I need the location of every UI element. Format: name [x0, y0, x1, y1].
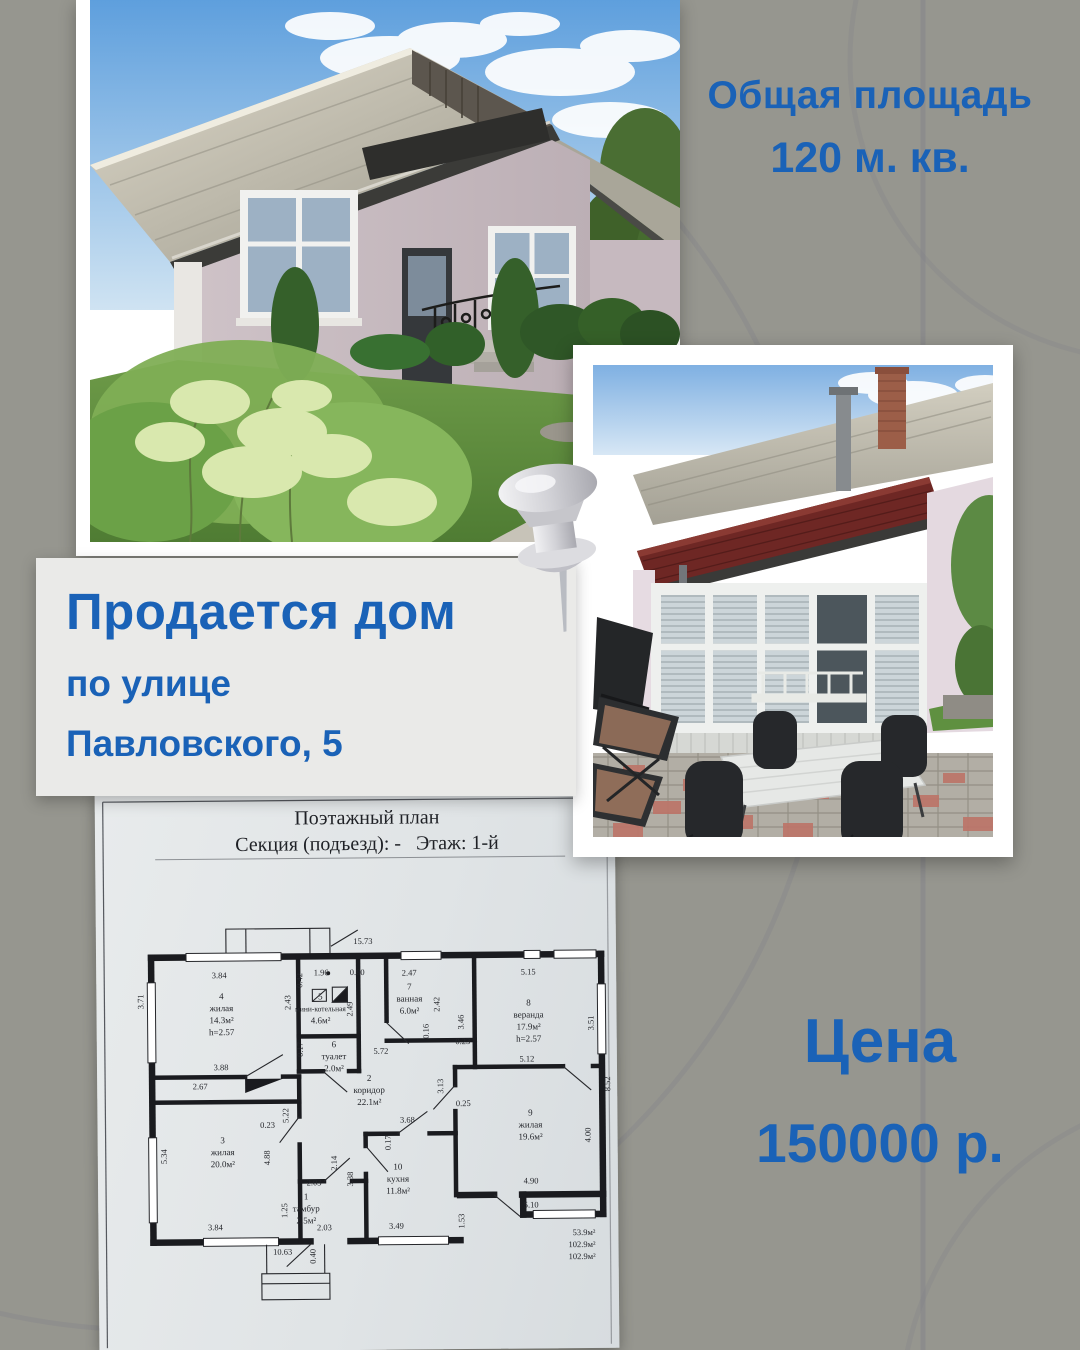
plan-room-label: 20.0м² — [211, 1159, 236, 1169]
plan-dim-label: 3.51 — [586, 1015, 596, 1030]
total-area-value: 120 м. кв. — [660, 134, 1080, 183]
pushpin-icon — [477, 448, 632, 638]
plan-dim-label: 3.84 — [208, 1222, 224, 1232]
plan-dim-label: 2.42 — [431, 997, 441, 1012]
plan-room-label: ванная — [396, 993, 422, 1003]
plan-dim-label: 5.12 — [519, 1053, 534, 1063]
plan-dim-label: 2.49 — [344, 1002, 354, 1017]
plan-room-label: 8 — [526, 997, 531, 1007]
plan-dim-label: 4.00 — [583, 1128, 593, 1143]
veranda-glazing — [651, 583, 927, 733]
plan-room-label: 14.3м² — [209, 1015, 234, 1025]
plan-room-label: 2.0м² — [324, 1063, 344, 1073]
plan-dim-label: 8.52 — [602, 1076, 612, 1091]
plan-dim-label: 3.84 — [212, 970, 228, 980]
plan-dim-label: 3.46 — [456, 1015, 466, 1030]
plan-dim-label: 0.25 — [456, 1098, 471, 1108]
plan-dim-label: 0.23 — [260, 1120, 275, 1130]
plan-room-label: 11.8м² — [386, 1186, 410, 1196]
plan-room-label: жилая — [210, 1147, 235, 1157]
patio-photo-frame — [573, 345, 1013, 857]
plan-room-label: 17.9м² — [517, 1021, 542, 1031]
patio-photo — [593, 365, 993, 837]
listing-street-line: по улице — [66, 663, 566, 705]
door-hatch — [245, 1079, 283, 1093]
plan-dim-label: 2.43 — [282, 995, 292, 1010]
plan-room-label: 5 — [318, 991, 323, 1001]
plan-dim-label: 5.72 — [373, 1046, 388, 1056]
plan-room-label: 9 — [528, 1107, 533, 1117]
plan-dim-label: 2.47 — [402, 967, 417, 977]
plan-room-label: мини-котельная — [295, 1004, 346, 1013]
listing-address-line: Павловского, 5 — [66, 723, 566, 765]
plan-room-label: 2.5м² — [296, 1215, 316, 1225]
floor-plan-drawing: Поэтажный план Секция (подъезд): - Этаж:… — [95, 784, 620, 1350]
plan-room-label: 4 — [219, 991, 224, 1001]
real-estate-poster: Общая площадь 120 м. кв. — [0, 0, 1080, 1350]
steps — [943, 695, 993, 719]
plan-header-subtitle: Секция (подъезд): - Этаж: 1-й — [235, 832, 499, 856]
plan-room-label: жилая — [518, 1119, 543, 1129]
plan-dim-label: 0.16 — [421, 1024, 431, 1039]
plan-room-label: 6 — [331, 1039, 336, 1049]
total-area-label: Общая площадь — [660, 74, 1080, 118]
plan-room-label: жилая — [209, 1003, 234, 1013]
plan-dim-label: 0.40 — [308, 1249, 318, 1264]
plan-dim-label: 3.13 — [435, 1079, 445, 1094]
plan-room-label: 10 — [393, 1162, 403, 1172]
plan-dim-label: 102.9м² — [569, 1251, 597, 1261]
price-block: Цена 150000 р. — [690, 1006, 1070, 1175]
porch — [262, 1244, 330, 1300]
plan-dim-label: 5.22 — [280, 1108, 290, 1123]
plan-dim-label: 5.15 — [521, 966, 536, 976]
plan-dim-label: 3.88 — [214, 1062, 229, 1072]
plan-room-label: 7 — [407, 982, 412, 992]
plan-room-label: h=2.57 — [516, 1033, 542, 1043]
plan-dim-label: 0.80 — [350, 967, 365, 977]
plan-dim-label: 102.9м² — [568, 1239, 596, 1249]
plan-dim-label: 10.63 — [273, 1247, 292, 1257]
plan-dim-label: 5.10 — [524, 1199, 539, 1209]
price-value: 150000 р. — [690, 1111, 1070, 1175]
floor-plan-sheet: Поэтажный план Секция (подъезд): - Этаж:… — [95, 784, 620, 1350]
plan-dim-label: 0.23 — [455, 1036, 470, 1046]
total-area-badge: Общая площадь 120 м. кв. — [660, 74, 1080, 183]
plan-dim-label: 2.14 — [329, 1155, 339, 1171]
plan-room-label: 1 — [304, 1191, 309, 1201]
plan-room-label: коридор — [353, 1085, 385, 1095]
plan-room-label: 3 — [220, 1135, 225, 1145]
vent-shaft — [226, 928, 358, 955]
plan-dim-label: 0.42 — [294, 973, 304, 988]
plan-dim-label: 4.88 — [262, 1150, 272, 1165]
plan-dim-label: 0.17 — [295, 1042, 305, 1057]
plan-room-label: кухня — [387, 1174, 409, 1184]
plan-room-label: 2 — [367, 1073, 372, 1083]
plan-room-label: 4.6м² — [311, 1015, 331, 1025]
plan-dim-label: 3.38 — [345, 1172, 355, 1187]
plan-dim-label: 2.67 — [193, 1081, 208, 1091]
plan-dim-label: 2.03 — [307, 1177, 322, 1187]
plan-room-label: h=2.57 — [209, 1027, 235, 1037]
plan-dim-label: 4.90 — [524, 1175, 539, 1185]
plan-dim-label: 3.49 — [389, 1221, 404, 1231]
plan-dim-label: 3.68 — [400, 1114, 415, 1124]
plan-dim-label: 53.9м² — [573, 1227, 596, 1237]
brick-chimney — [875, 367, 909, 449]
price-label: Цена — [690, 1006, 1070, 1077]
plan-room-label: тамбур — [293, 1203, 321, 1213]
plan-dim-label: 5.34 — [159, 1148, 169, 1164]
plan-room-label: 6.0м² — [400, 1005, 420, 1015]
plan-dim-label: 1.53 — [456, 1214, 466, 1229]
plan-dim-label: 1.25 — [279, 1203, 289, 1218]
plan-header-title: Поэтажный план — [294, 806, 440, 829]
plan-dim-label: 3.71 — [135, 994, 145, 1009]
plan-room-label: веранда — [513, 1009, 543, 1019]
plan-dim-label: 1.96 — [314, 967, 329, 977]
plan-room-label: 19.6м² — [518, 1131, 543, 1141]
plan-dim-label: 2.03 — [317, 1222, 332, 1232]
plan-dim-label: 15.73 — [353, 936, 372, 946]
plan-room-label: туалет — [322, 1051, 347, 1061]
plan-room-label: 22.1м² — [357, 1097, 382, 1107]
plan-dim-label: 0.17 — [383, 1135, 393, 1150]
